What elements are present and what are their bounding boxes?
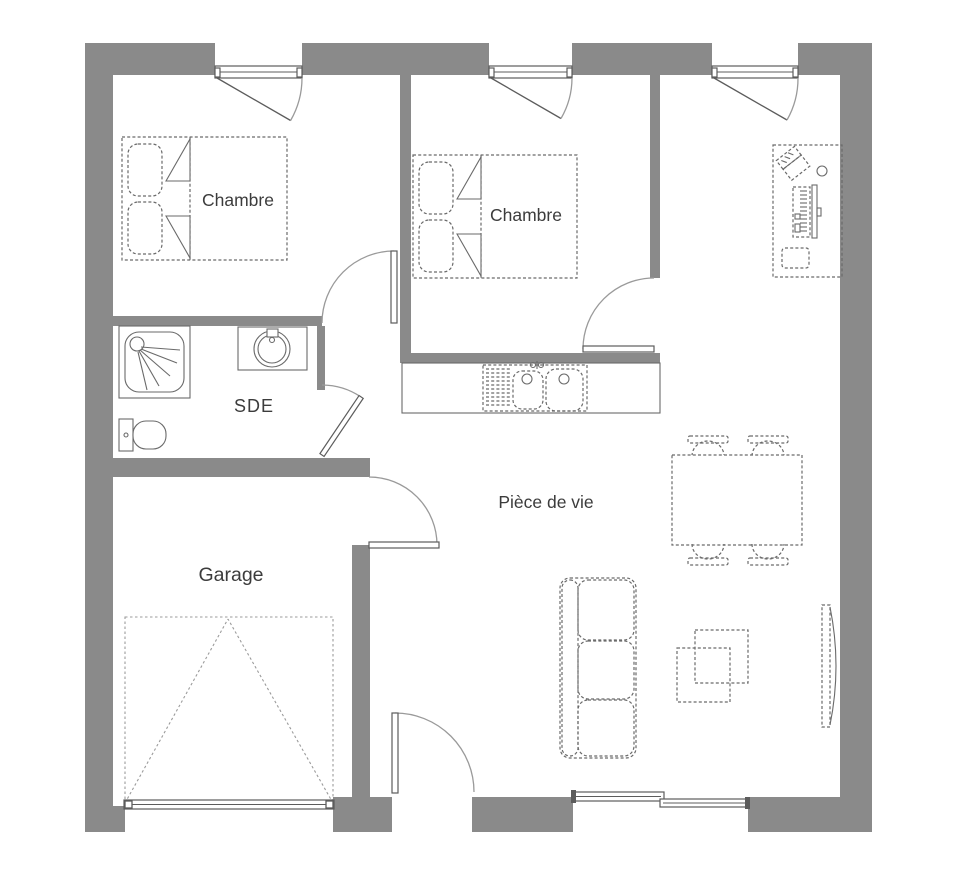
wall-chambre1-sde (113, 316, 322, 326)
wall-chambre1-chambre2 (400, 75, 411, 363)
room-label-chambre-1: Chambre (202, 190, 274, 210)
wall-chambre2-kitchen (402, 353, 660, 363)
wall-garage-living (352, 545, 370, 800)
wall-chambre2-right (650, 75, 660, 278)
room-label-chambre-2: Chambre (490, 205, 562, 225)
room-label-garage: Garage (198, 564, 263, 586)
floor-plan: Chambre Chambre SDE Garage Pièce de vie (0, 0, 960, 873)
floor-plan-page: Chambre Chambre SDE Garage Pièce de vie (0, 0, 960, 873)
wall-bottom-3 (472, 797, 573, 832)
wall-bottom-1 (85, 806, 125, 832)
wall-bottom-4 (748, 797, 872, 832)
wall-sde-right (317, 326, 325, 390)
wall-right (840, 43, 872, 832)
dining-table-icon (672, 455, 802, 545)
wall-top-3 (572, 43, 712, 75)
room-label-piece-de-vie: Pièce de vie (498, 492, 593, 512)
wall-bottom-2 (333, 797, 392, 832)
room-label-sde: SDE (234, 396, 274, 416)
wall-left (85, 43, 113, 832)
wall-top-2 (302, 43, 489, 75)
wall-sde-garage (85, 458, 370, 477)
toilet-icon (119, 419, 166, 451)
